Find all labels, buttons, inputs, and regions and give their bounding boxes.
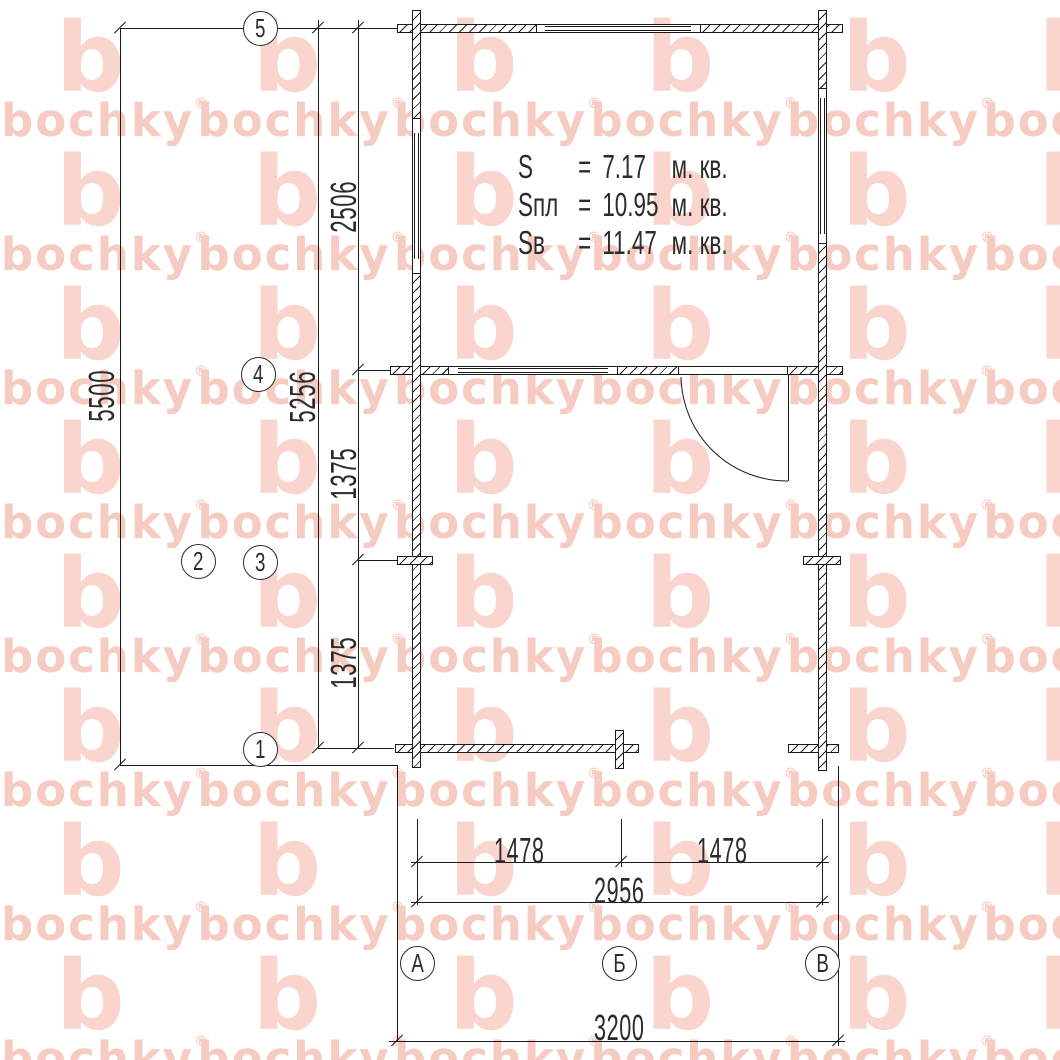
window-glazing-left xyxy=(414,133,419,259)
wall-stub-axis3-right xyxy=(803,556,841,565)
axis-bubble-label: 4 xyxy=(253,359,263,390)
axis-bubble-1: 1 xyxy=(243,732,278,767)
axis-bubble-label: 3 xyxy=(255,547,265,578)
window-glazing-mid xyxy=(458,368,608,373)
floor-plan-canvas: bbochky®bbochky®bbochky®bbochky®bbochky®… xyxy=(0,0,1060,1060)
wall-bottom-segment xyxy=(788,744,839,753)
dim-5256: 5256 xyxy=(282,373,324,423)
dim-1375-upper: 1375 xyxy=(323,450,365,500)
wall-stub-axisB-bottom xyxy=(615,730,624,769)
wall-mid-segment xyxy=(787,366,843,375)
area-label: Sпл xyxy=(518,186,567,224)
wall-stub-axis3-left xyxy=(397,556,433,565)
area-value: 11.47 xyxy=(602,224,671,262)
equals-sign: = xyxy=(567,148,602,186)
axis-bubble-A: А xyxy=(400,946,435,981)
wall-left-segment xyxy=(412,273,421,768)
axis-bubble-5: 5 xyxy=(243,11,278,46)
axis-bubble-3: 3 xyxy=(243,545,278,580)
area-unit: м. кв. xyxy=(672,224,728,262)
dim-3200: 3200 xyxy=(594,1007,642,1049)
area-value: 10.95 xyxy=(602,186,671,224)
wall-mid-segment xyxy=(617,366,679,375)
area-row-s: S = 7.17 м. кв. xyxy=(518,148,728,186)
dim-1478-left: 1478 xyxy=(494,830,542,872)
axis-bubble-label: 5 xyxy=(255,13,265,44)
wall-bottom-segment xyxy=(395,744,639,753)
axis-bubble-label: В xyxy=(816,948,828,979)
equals-sign: = xyxy=(567,224,602,262)
axis-bubble-2: 2 xyxy=(181,544,216,579)
axis-bubble-label: А xyxy=(411,948,423,979)
wall-right-segment xyxy=(818,243,827,771)
area-unit: м. кв. xyxy=(672,186,728,224)
axis-bubble-label: 1 xyxy=(255,734,265,765)
axis-bubble-4: 4 xyxy=(241,357,276,392)
door-opening xyxy=(678,366,788,375)
window-glazing-top xyxy=(545,26,691,31)
dim-1375-lower: 1375 xyxy=(323,639,365,689)
dim-2956: 2956 xyxy=(594,870,642,912)
area-label: S xyxy=(518,148,567,186)
area-row-sv: Sв = 11.47 м. кв. xyxy=(518,224,728,262)
dim-5500: 5500 xyxy=(81,372,123,422)
door-swing-arc xyxy=(681,377,788,481)
axis-bubble-B: Б xyxy=(602,946,637,981)
area-label: Sв xyxy=(518,224,567,262)
wall-left-segment xyxy=(412,10,421,119)
window-glazing-right xyxy=(820,98,825,234)
area-row-spl: Sпл = 10.95 м. кв. xyxy=(518,186,728,224)
dim-2506: 2506 xyxy=(323,183,365,233)
area-unit: м. кв. xyxy=(672,148,728,186)
dim-1478-right: 1478 xyxy=(697,830,745,872)
axis-bubble-label: Б xyxy=(613,948,625,979)
wall-right-segment xyxy=(818,10,827,89)
axis-bubble-V: В xyxy=(805,946,840,981)
equals-sign: = xyxy=(567,186,602,224)
axis-bubble-label: 2 xyxy=(193,546,203,577)
area-value: 7.17 xyxy=(602,148,671,186)
